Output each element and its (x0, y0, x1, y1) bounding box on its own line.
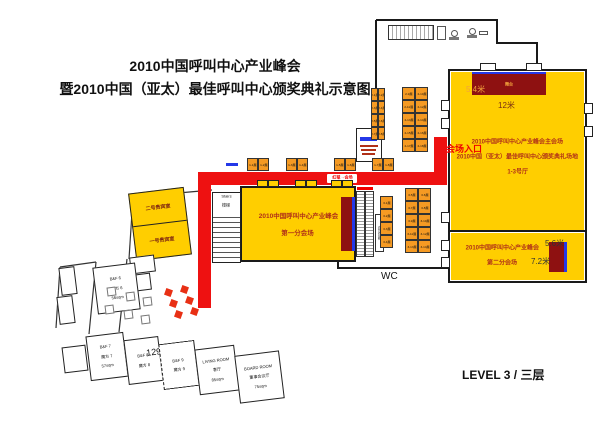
booth-label: 2-3展 (371, 106, 378, 109)
booth: 1-1展 (247, 158, 258, 171)
table-icon (125, 291, 135, 301)
booth-label: 3-9展 (408, 219, 415, 222)
booth: 2-17展 (402, 139, 415, 152)
escalator-shaft (356, 191, 365, 257)
sofa-icon (467, 35, 477, 38)
booth: 2-2展 (378, 88, 385, 101)
main-stage-label: 舞台 (505, 82, 513, 86)
booth: 1-7展 (372, 158, 383, 171)
booth-label: 1-5展 (336, 163, 343, 166)
booth-label: 2-17展 (404, 144, 413, 147)
booth-label: 1-7展 (374, 163, 381, 166)
booth: 2-5展 (371, 114, 378, 127)
small-room (58, 266, 77, 296)
table-icon (106, 286, 116, 296)
booth: 2-18展 (415, 139, 428, 152)
main-stage-depth: 5.4米 (466, 79, 485, 97)
door-notch (526, 63, 542, 71)
booth: 2-10展 (415, 87, 428, 100)
booth: 3-2展 (380, 209, 393, 222)
booth-label: 3-12展 (420, 232, 429, 235)
booth: 3-1展 (380, 196, 393, 209)
door-notch (480, 63, 496, 71)
booth: 2-3展 (371, 101, 378, 114)
booth-label: 1-8展 (385, 163, 392, 166)
hall2-title: 2010中国呼叫中心产业峰会 第二分会场 (455, 243, 550, 267)
booth: 3-11展 (405, 227, 418, 240)
escalator-top-icon (388, 25, 434, 40)
booth: 2-12展 (415, 100, 428, 113)
route-corridor-vertical-left (198, 172, 211, 308)
booth-label: 3-14展 (420, 245, 429, 248)
room-bf9: B&F 9 魔方 9 (158, 340, 199, 390)
booth: 3-10展 (418, 214, 431, 227)
booth: 3-14展 (418, 240, 431, 253)
reception-desk-icon (437, 26, 446, 40)
room-living: LIVING ROOM 客厅 85sqm (194, 345, 239, 396)
booth-label: 3-11展 (407, 232, 416, 235)
booth-label: 2-8展 (378, 132, 385, 135)
booth: 1-3展 (286, 158, 297, 171)
booth-label: 3-3展 (383, 227, 390, 230)
booth: 3-8展 (418, 201, 431, 214)
hall1-title: 2010中国呼叫中心产业峰会 第一分会场 (248, 212, 348, 238)
booth: 2-8展 (378, 127, 385, 140)
hall1-booth-tab (257, 180, 268, 187)
text-bar (360, 145, 378, 147)
sofa-icon (449, 37, 459, 40)
door-notch (441, 240, 450, 251)
table-icon (104, 304, 114, 314)
booth-label: 3-4展 (383, 240, 390, 243)
vip-room-1: 一号贵宾室 (133, 221, 191, 260)
booth: 2-9展 (402, 87, 415, 100)
room-bf7: B&F 7 魔方 7 57sqm (85, 332, 128, 381)
stairs-treads (213, 213, 240, 261)
table-icon (479, 31, 488, 35)
booth: 3-3展 (380, 222, 393, 235)
route-corridor-horizontal (198, 172, 447, 185)
main-hall-entrance-label: 会场入口 (446, 139, 482, 157)
booth-label: 3-6展 (421, 193, 428, 196)
wing-notch-room (62, 345, 89, 374)
small-room (56, 295, 75, 325)
booth-label: 3-8展 (421, 206, 428, 209)
booth-label: 2-9展 (405, 92, 412, 95)
booth: 3-9展 (405, 214, 418, 227)
stairs-label-en: Stairs (221, 194, 231, 198)
booth: 1-5展 (334, 158, 345, 171)
booth-label: 1-1展 (249, 163, 256, 166)
booth-label: 2-10展 (417, 92, 426, 95)
booth-label: 2-18展 (417, 144, 426, 147)
door-notch (441, 100, 450, 111)
vip1-label: 一号贵宾室 (149, 236, 174, 245)
table-icon (142, 296, 152, 306)
booth: 3-4展 (380, 235, 393, 248)
booth: 2-13展 (402, 113, 415, 126)
booth-label: 3-13展 (407, 245, 416, 248)
booth-label: 1-3展 (288, 163, 295, 166)
text-bar (361, 149, 376, 151)
booth-label: 3-7展 (408, 206, 415, 209)
booth: 2-16展 (415, 126, 428, 139)
vip2-label: 二号贵宾室 (145, 203, 170, 212)
hall1-booth-tab (342, 180, 353, 187)
booth: 1-2展 (258, 158, 269, 171)
booth-label: 2-7展 (371, 132, 378, 135)
booth: 3-12展 (418, 227, 431, 240)
booth: 3-5展 (405, 188, 418, 201)
booth-label: 2-6展 (378, 119, 385, 122)
escalator-entry-marker (357, 187, 373, 190)
booth-label: 3-10展 (420, 219, 429, 222)
service-counter-icon (226, 163, 238, 166)
door-notch (441, 257, 450, 268)
booth-label: 2-1展 (371, 93, 378, 96)
booth-label: 2-2展 (378, 93, 385, 96)
main-stage-width: 12米 (498, 95, 515, 113)
hall1-booth-tab (306, 180, 317, 187)
room-board: BOARD ROOM 董事会议厅 75sqm (234, 350, 285, 403)
booth: 2-11展 (402, 100, 415, 113)
booth-label: 1-2展 (260, 163, 267, 166)
room-bf6: B&F 6 魔方 6 56sqm (92, 263, 140, 315)
booth: 2-15展 (402, 126, 415, 139)
booth-label: 2-14展 (417, 118, 426, 121)
sofa-icon (469, 28, 476, 35)
route-corridor-vertical-right (434, 137, 447, 177)
text-bar (362, 153, 375, 155)
door-notch (441, 118, 450, 129)
booth-label: 3-2展 (383, 214, 390, 217)
booth: 1-6展 (345, 158, 356, 171)
booth-label: 1-6展 (347, 163, 354, 166)
booth-label: 2-4展 (378, 106, 385, 109)
booth-label: 2-15展 (404, 131, 413, 134)
booth: 1-8展 (383, 158, 394, 171)
hall1-booth-tab (295, 180, 306, 187)
vip-rooms: 二号贵宾室 一号贵宾室 (128, 187, 192, 261)
hall1-stage (341, 197, 352, 251)
hall2-stage-edge (564, 242, 567, 272)
door-notch (584, 103, 593, 114)
booth-label: 2-11展 (404, 105, 413, 108)
door-notch (584, 126, 593, 137)
floorplan-canvas: 2010中国呼叫中心产业峰会 暨2010中国（亚太）最佳呼叫中心颁奖典礼示意图 (0, 0, 600, 424)
booth: 3-7展 (405, 201, 418, 214)
booth-label: 1-4展 (299, 163, 306, 166)
stairs-label-cn: 楼梯 (222, 204, 230, 208)
booth: 3-6展 (418, 188, 431, 201)
booth: 3-13展 (405, 240, 418, 253)
booth: 2-6展 (378, 114, 385, 127)
booth: 2-14展 (415, 113, 428, 126)
sofa-icon (451, 30, 458, 37)
hall1-stage-edge (352, 197, 355, 251)
wc-label: WC (381, 266, 398, 284)
table-icon (123, 309, 133, 319)
hall1-booth-tab (331, 180, 342, 187)
stairs-room: Stairs 楼梯 (212, 192, 241, 263)
booth: 2-7展 (371, 127, 378, 140)
booth-label: 2-12展 (417, 105, 426, 108)
booth-label: 2-16展 (417, 131, 426, 134)
booth: 2-1展 (371, 88, 378, 101)
hall1-booth-tab (268, 180, 279, 187)
booth-label: 2-5展 (371, 119, 378, 122)
booth-label: 3-1展 (383, 201, 390, 204)
booth: 2-4展 (378, 101, 385, 114)
escalator-shaft (365, 191, 374, 257)
level-label: LEVEL 3 / 三层 (462, 366, 544, 383)
booth: 1-4展 (297, 158, 308, 171)
booth-label: 3-5展 (408, 193, 415, 196)
table-icon (140, 314, 150, 324)
door-notch (441, 212, 450, 223)
booth-label: 2-13展 (404, 118, 413, 121)
